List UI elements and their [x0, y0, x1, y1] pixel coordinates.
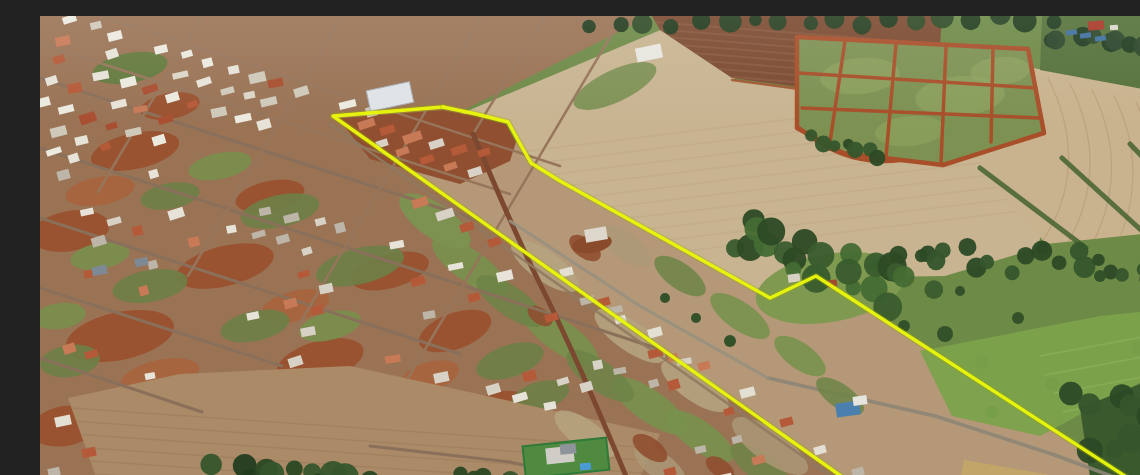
aerial-photo: Oblique aerial photo of a town edge: den… [40, 16, 1140, 475]
aerial-photo-canvas [40, 16, 1140, 475]
